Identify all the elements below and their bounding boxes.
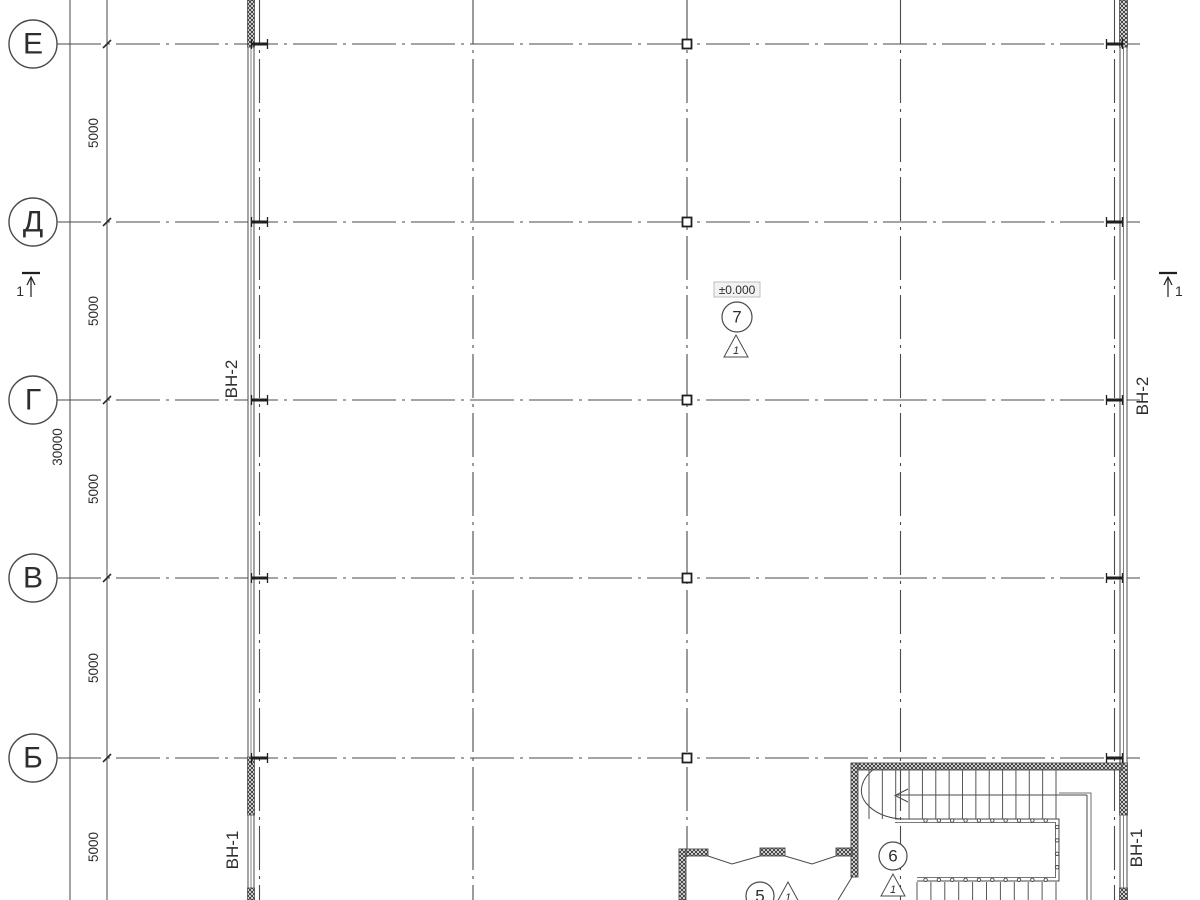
detail-number: 1	[733, 345, 739, 357]
railing-post	[937, 819, 940, 822]
detail-number: 1	[890, 884, 896, 896]
dim-label: 5000	[86, 832, 101, 862]
railing-post	[1056, 866, 1059, 869]
wall-tag: ВН-1	[1127, 829, 1146, 868]
callout-number: 6	[888, 847, 897, 866]
dimension-lines: 5000500050005000500030000	[50, 0, 111, 900]
stair-wall-stub	[836, 848, 852, 856]
railing-post	[1044, 819, 1047, 822]
railing-post	[1056, 825, 1059, 828]
railing-post	[951, 878, 954, 881]
railing-post	[951, 819, 954, 822]
stair-walking-line	[896, 795, 1087, 900]
railing-post	[1017, 878, 1020, 881]
floor-plan: ЕДГВБ 5000500050005000500030000	[0, 0, 1200, 900]
partition-pier-middle	[760, 848, 785, 856]
dim-label: 5000	[86, 653, 101, 683]
partition-pier-left-v	[679, 849, 686, 900]
annotations: ВН-2ВН-1ВН-2ВН-1±0.00071615111	[16, 273, 1183, 900]
column-square	[683, 40, 692, 49]
railing-post	[1017, 819, 1020, 822]
callout-number: 7	[732, 308, 741, 327]
column-square	[683, 754, 692, 763]
railing-post	[977, 819, 980, 822]
callout-number: 5	[755, 887, 764, 900]
total-dim-label: 30000	[50, 428, 65, 466]
railing-post	[937, 878, 940, 881]
railing-post	[1004, 819, 1007, 822]
left-wall-hatch-b	[248, 757, 255, 815]
stair-railing-inner	[895, 823, 1056, 878]
stair-railing-outer	[895, 819, 1059, 881]
railing-post	[1004, 878, 1007, 881]
axis-bubble-label: Е	[23, 28, 43, 61]
column-square	[683, 396, 692, 405]
axis-bubble-label: Д	[23, 206, 43, 239]
axis-bubble-label: Б	[23, 742, 43, 775]
axis-bubble-label: В	[23, 562, 43, 595]
level-mark-label: ±0.000	[719, 283, 756, 297]
railing-post	[1056, 852, 1059, 855]
railing-post	[977, 878, 980, 881]
dim-label: 5000	[86, 296, 101, 326]
section-label: 1	[1175, 283, 1183, 299]
railing-post	[1031, 878, 1034, 881]
railing-post	[1044, 878, 1047, 881]
dim-label: 5000	[86, 118, 101, 148]
railing-post	[991, 819, 994, 822]
axis-bubble-label: Г	[25, 384, 41, 417]
railing-post	[924, 819, 927, 822]
wall-tag: ВН-1	[223, 831, 242, 870]
railing-post	[991, 878, 994, 881]
stair-treads	[869, 770, 1059, 900]
railing-post	[964, 878, 967, 881]
landing-edge	[1059, 793, 1091, 900]
column-square	[683, 574, 692, 583]
railing-post	[1056, 839, 1059, 842]
column-square	[683, 218, 692, 227]
folding-partition-left	[708, 856, 760, 864]
wall-tag: ВН-2	[222, 360, 241, 399]
wall-tag: ВН-2	[1133, 377, 1152, 416]
right-wall-hatch-bot	[1120, 888, 1128, 900]
stair-left-wall	[851, 763, 858, 877]
stair-top-wall	[852, 763, 1122, 770]
floor-plan-canvas: ЕДГВБ 5000500050005000500030000	[0, 0, 1200, 900]
door-leaf	[838, 877, 852, 900]
railing-post	[924, 878, 927, 881]
left-wall-hatch-bot	[248, 888, 255, 900]
railing-post	[964, 819, 967, 822]
section-label: 1	[16, 283, 24, 299]
detail-number: 1	[785, 892, 791, 900]
folding-partition-right	[785, 856, 836, 864]
railing-post	[1031, 819, 1034, 822]
right-wall-hatch-b	[1120, 763, 1128, 815]
dim-label: 5000	[86, 474, 101, 504]
right-wall-hatch-top	[1120, 0, 1128, 47]
